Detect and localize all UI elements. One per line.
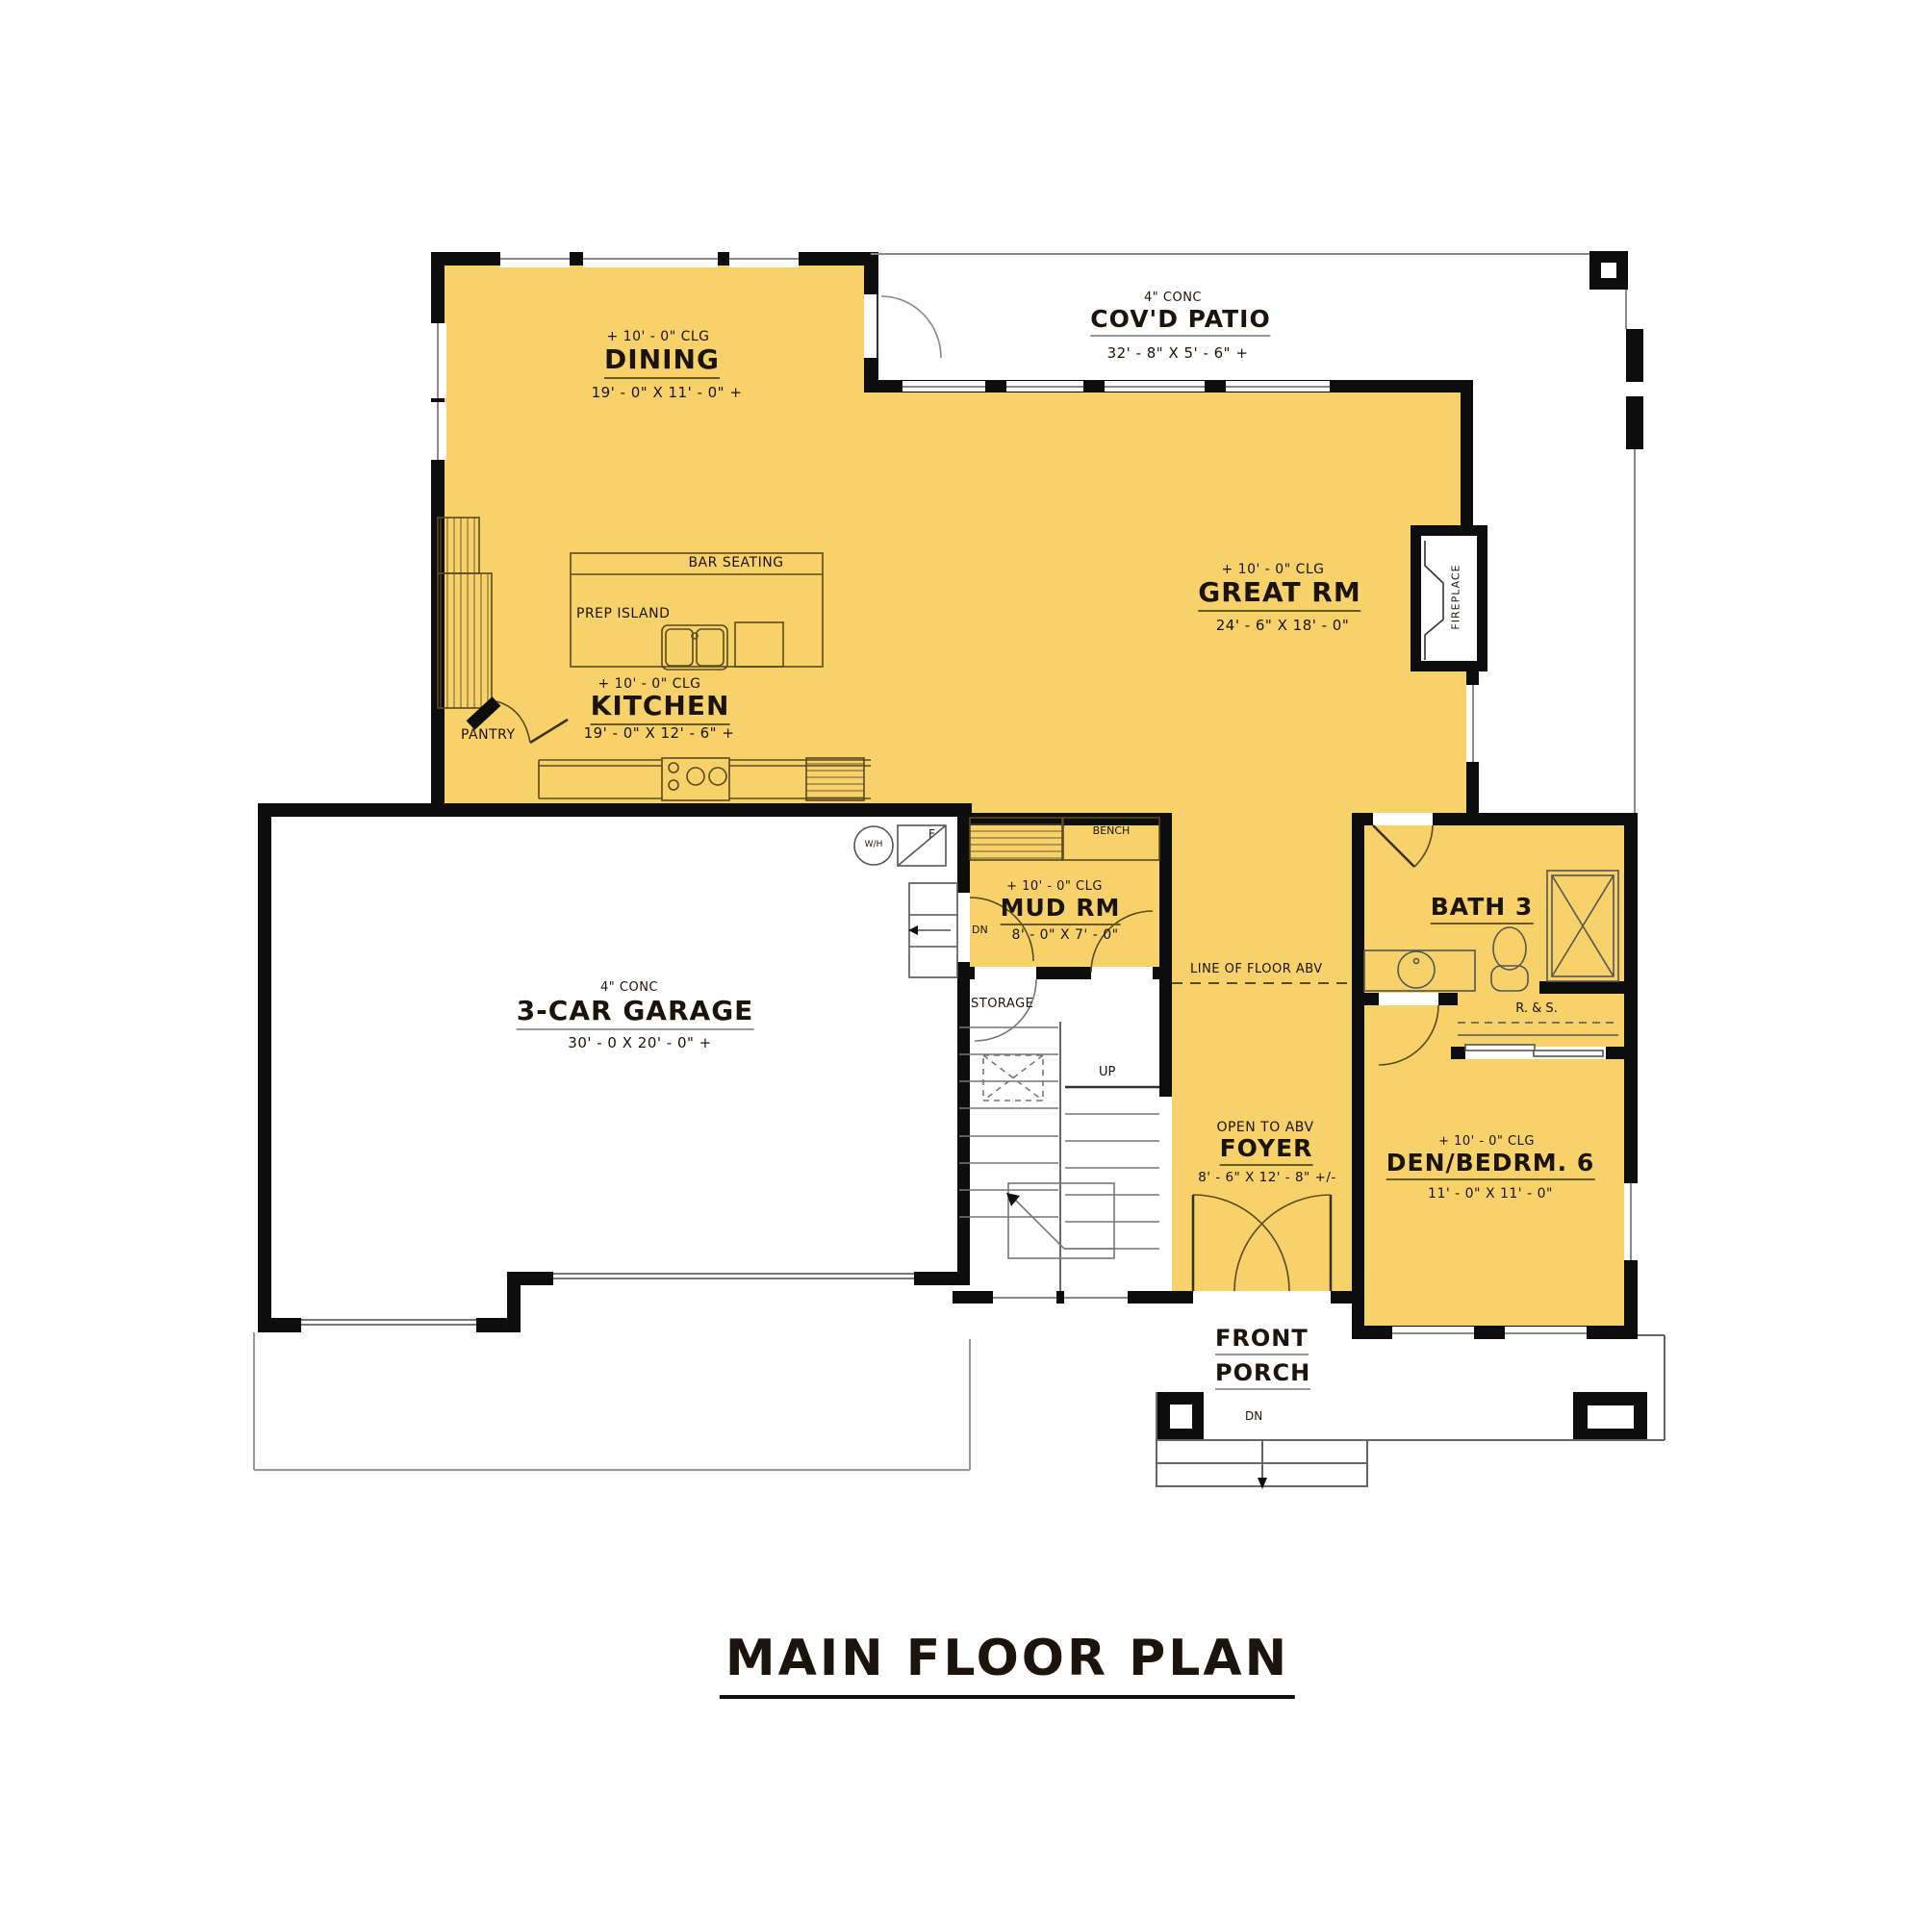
bath3-name-label: BATH 3 bbox=[1431, 893, 1534, 924]
garage-name-label: 3-CAR GARAGE bbox=[517, 995, 754, 1030]
glass-door-greatrm-2 bbox=[1006, 381, 1083, 392]
window-landing-mullion bbox=[1056, 1291, 1064, 1304]
window-dining-left-2 bbox=[429, 402, 446, 460]
patio-post-inner bbox=[1601, 263, 1616, 278]
furnace-label: F bbox=[928, 827, 935, 841]
rod-shelf-label: R. & S. bbox=[1515, 1001, 1558, 1016]
mud-dims-label: 8' - 0" X 7' - 0" bbox=[1011, 927, 1118, 943]
kitchen-dims-label: 19' - 0" X 12' - 6" + bbox=[584, 724, 735, 742]
garage-steps-icon bbox=[909, 883, 957, 977]
window-dining-left-1 bbox=[429, 323, 446, 398]
water-heater-label: W/H bbox=[865, 840, 883, 849]
garage-dims-label: 30' - 0 X 20' - 0" + bbox=[568, 1034, 711, 1051]
wall-garage-jog-c bbox=[507, 1272, 553, 1285]
wall-garage-right bbox=[957, 816, 970, 1284]
porch-name-line1: FRONT bbox=[1215, 1325, 1309, 1355]
window-den-bottom-1 bbox=[1392, 1327, 1474, 1339]
wall-foyer-right-jamb bbox=[1331, 1291, 1352, 1304]
den-name-label: DEN/BEDRM. 6 bbox=[1386, 1149, 1595, 1180]
dining-name-label: DINING bbox=[604, 343, 720, 379]
wall-garage-left bbox=[258, 813, 271, 1332]
dn-stairs-label: DN bbox=[972, 924, 988, 936]
wall-mud-top bbox=[970, 813, 1172, 825]
den-ceiling-label: + 10' - 0" CLG bbox=[1438, 1134, 1535, 1149]
fireplace-label: FIREPLACE bbox=[1450, 540, 1462, 655]
door-gap-garage-mud bbox=[957, 893, 970, 962]
foyer-corridor-fill bbox=[1172, 816, 1352, 1291]
door-gap-dining-patio bbox=[864, 294, 878, 358]
door-gap-bath3 bbox=[1373, 813, 1433, 825]
pantry-label: PANTRY bbox=[461, 727, 516, 743]
window-dining-top-2 bbox=[583, 249, 718, 267]
garage-door-lines bbox=[301, 1274, 914, 1325]
bath3-fill bbox=[1352, 816, 1636, 1058]
glass-door-greatrm-4 bbox=[1226, 381, 1330, 392]
mud-ceiling-label: + 10' - 0" CLG bbox=[1006, 879, 1103, 894]
line-of-floor-label: LINE OF FLOOR ABV bbox=[1190, 962, 1323, 976]
wall-kitchen-garage bbox=[258, 803, 972, 817]
door-gap-entry bbox=[1193, 1291, 1331, 1304]
furnace-icon bbox=[898, 825, 946, 866]
wall-patio-right-seg-a bbox=[1626, 329, 1643, 382]
floor-plan: + 10' - 0" CLG DINING 19' - 0" X 11' - 0… bbox=[0, 0, 1932, 1924]
kitchen-name-label: KITCHEN bbox=[591, 690, 730, 725]
foyer-note-label: OPEN TO ABV bbox=[1216, 1120, 1313, 1135]
page-title: MAIN FLOOR PLAN bbox=[720, 1630, 1295, 1699]
porch-name-line2: PORCH bbox=[1215, 1359, 1310, 1390]
up-label: UP bbox=[1099, 1065, 1115, 1079]
wall-mud-right bbox=[1159, 813, 1172, 979]
wall-den-left bbox=[1352, 1005, 1364, 1338]
patio-dims-label: 32' - 8" X 5' - 6" + bbox=[1107, 344, 1249, 362]
porch-dn-arrow bbox=[1258, 1478, 1267, 1489]
dining-dims-label: 19' - 0" X 11' - 0" + bbox=[592, 384, 743, 401]
window-greatrm-right bbox=[1466, 685, 1479, 762]
great-room-fill bbox=[871, 385, 1472, 816]
foyer-dims-label: 8' - 6" X 12' - 8" +/- bbox=[1198, 1170, 1336, 1185]
den-dims-label: 11' - 0" X 11' - 0" bbox=[1428, 1186, 1553, 1202]
wall-patio-right-seg-b bbox=[1626, 396, 1643, 449]
mud-name-label: MUD RM bbox=[1001, 894, 1121, 925]
wall-greatrm-right-upper bbox=[1461, 392, 1473, 527]
porch-post-left-inner bbox=[1170, 1405, 1192, 1429]
door-gap-closet-bypass bbox=[1465, 1047, 1606, 1059]
porch-post-right-inner bbox=[1588, 1405, 1634, 1429]
garage-slab-label: 4" CONC bbox=[600, 980, 658, 995]
window-dining-top-1 bbox=[500, 249, 570, 267]
greatrm-dims-label: 24' - 6" X 18' - 0" bbox=[1216, 617, 1350, 634]
wall-bath-bottom-right bbox=[1539, 981, 1624, 994]
glass-door-greatrm-1 bbox=[902, 381, 985, 392]
window-den-right bbox=[1624, 1183, 1638, 1260]
wall-stair-right bbox=[1159, 979, 1172, 1097]
window-dining-top-3 bbox=[729, 249, 799, 267]
patio-slab-label: 4" CONC bbox=[1144, 291, 1202, 305]
dn-porch-label: DN bbox=[1245, 1409, 1262, 1423]
wall-garage-bottom-left bbox=[258, 1318, 301, 1332]
apron-outline bbox=[254, 1332, 970, 1470]
prep-island-label: PREP ISLAND bbox=[576, 606, 670, 621]
greatrm-ceiling-label: + 10' - 0" CLG bbox=[1221, 562, 1324, 577]
patio-name-label: COV'D PATIO bbox=[1090, 305, 1270, 337]
glass-door-greatrm-3 bbox=[1105, 381, 1205, 392]
stairs bbox=[959, 1022, 1159, 1291]
storage-label: STORAGE bbox=[971, 997, 1033, 1011]
greatrm-name-label: GREAT RM bbox=[1198, 576, 1360, 612]
door-gap-den bbox=[1379, 993, 1438, 1005]
window-den-bottom-2 bbox=[1505, 1327, 1587, 1339]
stair-up-arrow bbox=[1006, 1193, 1020, 1206]
wall-bath-left bbox=[1352, 813, 1364, 1005]
door-gap-mud-foyer bbox=[1091, 967, 1153, 979]
foyer-name-label: FOYER bbox=[1220, 1134, 1313, 1166]
door-gap-mud-storage bbox=[975, 967, 1036, 979]
bench-label: BENCH bbox=[1093, 824, 1131, 837]
chase-dashed-box bbox=[983, 1055, 1043, 1101]
bar-seating-label: BAR SEATING bbox=[688, 555, 783, 570]
dining-ceiling-label: + 10' - 0" CLG bbox=[606, 329, 709, 344]
